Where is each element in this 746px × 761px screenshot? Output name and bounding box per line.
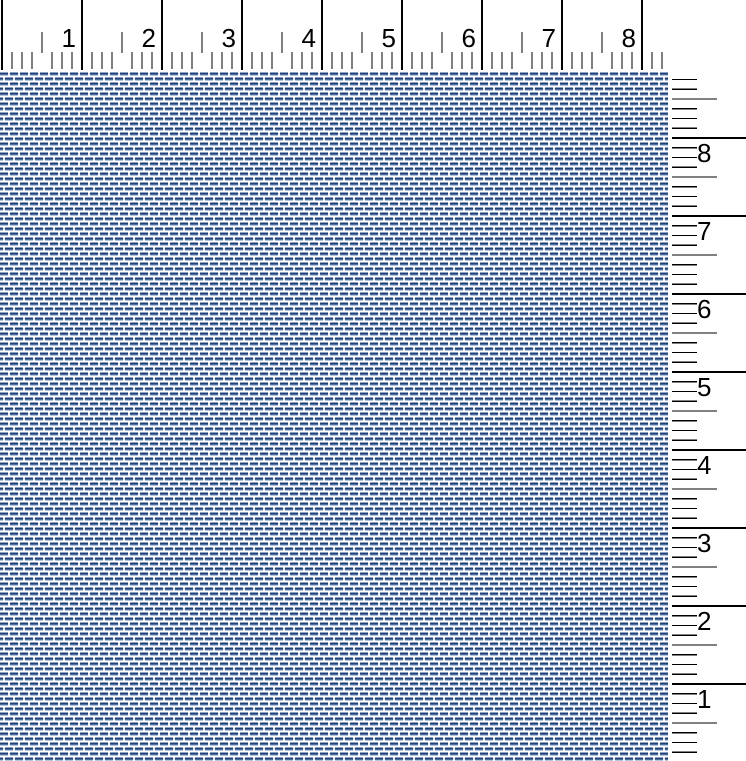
weaving-app-canvas: 12345678 87654321 [0,0,746,761]
vertical-ruler-label: 3 [697,528,711,558]
vertical-ruler-label: 4 [697,450,711,480]
vertical-ruler-label: 2 [697,606,711,636]
horizontal-ruler-label: 1 [62,23,76,53]
horizontal-ruler-ticks: 12345678 [0,0,746,72]
vertical-ruler-label: 1 [697,684,711,714]
vertical-ruler-label: 7 [697,216,711,246]
horizontal-ruler-label: 7 [542,23,556,53]
vertical-ruler-label: 5 [697,372,711,402]
vertical-ruler-label: 6 [697,294,711,324]
vertical-ruler: 87654321 [668,72,746,761]
weave-fabric-fill [0,72,668,761]
weave-pattern [0,72,668,761]
horizontal-ruler-label: 5 [382,23,396,53]
horizontal-ruler-label: 6 [462,23,476,53]
vertical-ruler-ticks: 87654321 [668,72,746,761]
drawdown-fabric-preview[interactable] [0,72,668,761]
horizontal-ruler: 12345678 [0,0,746,72]
vertical-ruler-label: 8 [697,138,711,168]
horizontal-ruler-label: 4 [302,23,316,53]
horizontal-ruler-label: 8 [622,23,636,53]
horizontal-ruler-label: 3 [222,23,236,53]
horizontal-ruler-label: 2 [142,23,156,53]
